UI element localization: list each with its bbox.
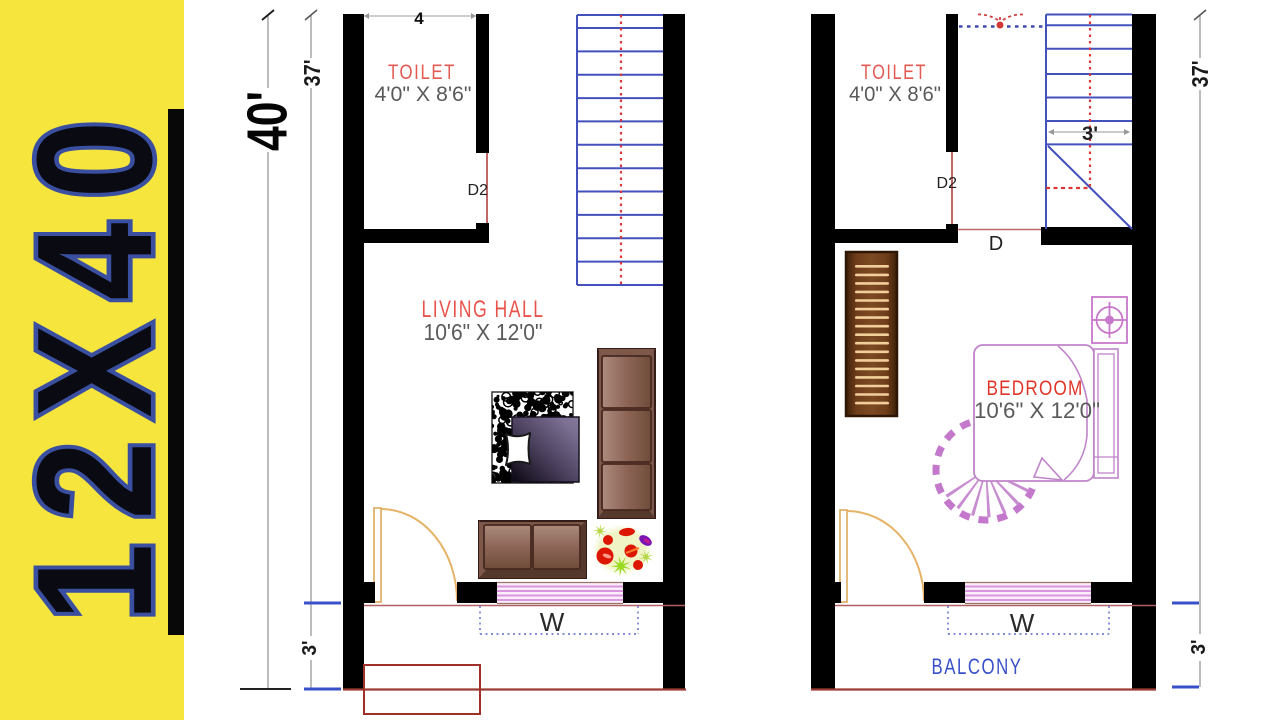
svg-text:4: 4 <box>414 9 424 28</box>
svg-text:37': 37' <box>1187 61 1213 88</box>
svg-text:4'0" X 8'6": 4'0" X 8'6" <box>849 83 941 106</box>
svg-text:W: W <box>540 607 565 637</box>
svg-text:3': 3' <box>299 641 321 656</box>
svg-text:40': 40' <box>237 91 299 151</box>
svg-text:TOILET: TOILET <box>861 61 927 84</box>
svg-text:3': 3' <box>1082 124 1098 145</box>
svg-text:D: D <box>989 233 1003 255</box>
svg-text:37': 37' <box>299 60 325 87</box>
svg-text:W: W <box>1010 608 1035 638</box>
svg-text:D2: D2 <box>468 182 489 199</box>
svg-text:D2: D2 <box>937 175 958 192</box>
svg-text:4'0" X 8'6": 4'0" X 8'6" <box>375 83 472 106</box>
svg-text:BALCONY: BALCONY <box>932 654 1023 679</box>
svg-text:BEDROOM: BEDROOM <box>987 377 1084 400</box>
svg-text:10'6" X 12'0": 10'6" X 12'0" <box>424 319 543 345</box>
svg-text:TOILET: TOILET <box>388 61 456 84</box>
svg-text:10'6" X 12'0": 10'6" X 12'0" <box>974 398 1100 423</box>
svg-text:12X40: 12X40 <box>4 97 187 622</box>
svg-text:3': 3' <box>1188 640 1210 655</box>
